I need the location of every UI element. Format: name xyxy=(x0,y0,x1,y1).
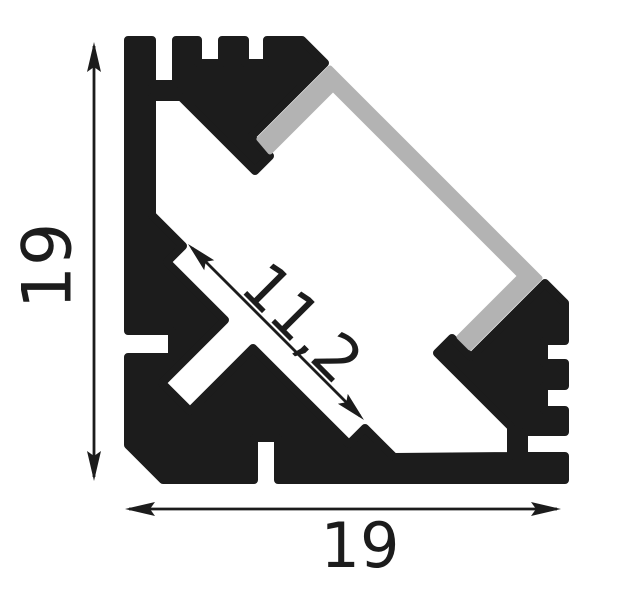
drawing-canvas: 19 19 11,2 xyxy=(0,0,622,600)
height-dimension-label: 19 xyxy=(9,223,88,310)
horizontal-dimension: 19 xyxy=(125,502,561,582)
profile-cross-section-diagram: 19 19 11,2 xyxy=(0,0,622,600)
width-dimension-label: 19 xyxy=(321,509,400,582)
vertical-dimension: 19 xyxy=(9,42,101,481)
